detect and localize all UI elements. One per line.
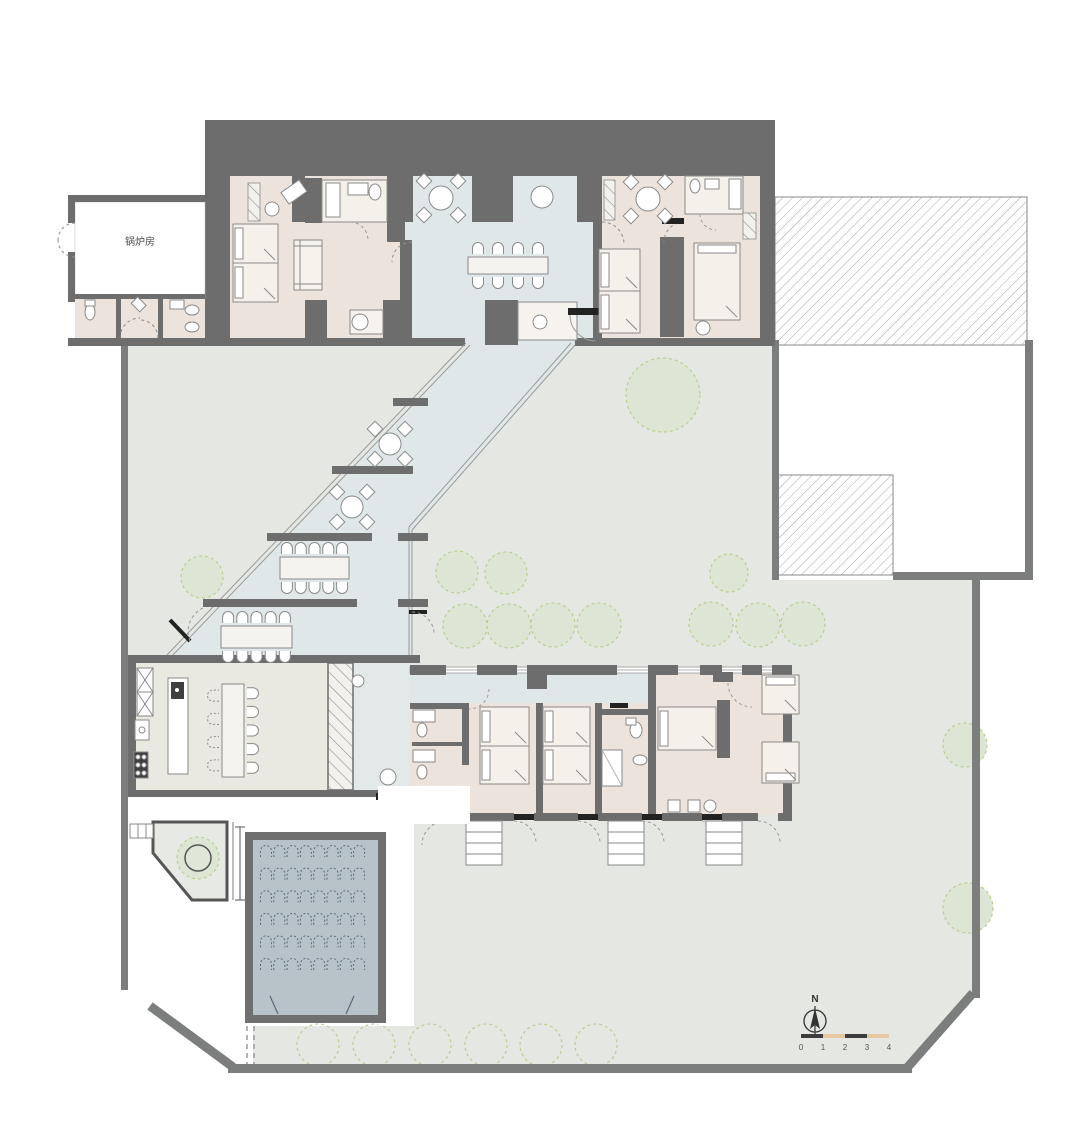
table-top: [696, 321, 710, 335]
sofa-room1: [294, 240, 322, 290]
boiler-annex: 锅炉房: [58, 195, 208, 346]
tree: [577, 603, 621, 647]
dimension-line: [235, 827, 245, 900]
pillow: [601, 253, 609, 287]
tree: [485, 552, 527, 594]
wing-east-stools: [668, 800, 716, 812]
chair: [265, 651, 276, 663]
tree: [443, 604, 487, 648]
pillow: [698, 245, 736, 253]
chair: [513, 277, 524, 289]
shelf-room2b: [604, 180, 615, 220]
kitchen-shelf-wall: [328, 663, 353, 790]
chair: [223, 612, 234, 624]
pillow: [545, 711, 553, 742]
round-table: [696, 321, 710, 335]
table-top: [352, 314, 368, 330]
tree: [181, 556, 223, 598]
tree: [531, 603, 575, 647]
annex-double-door: [58, 223, 75, 257]
bed: [543, 707, 590, 746]
scale-segment: [845, 1034, 867, 1038]
chair: [281, 582, 292, 594]
chair: [265, 612, 276, 624]
chair: [309, 543, 320, 555]
chair: [237, 612, 248, 624]
bed: [233, 224, 278, 263]
planter-tree-trunk: [185, 845, 211, 871]
tree: [943, 723, 987, 767]
chair: [533, 277, 544, 289]
main-building-north: [205, 120, 775, 346]
scale-segment: [867, 1034, 889, 1038]
chair: [493, 243, 504, 255]
threshold-bar: [568, 308, 602, 315]
bed: [762, 675, 799, 714]
bed: [233, 263, 278, 302]
table-top: [341, 496, 363, 518]
pillow: [766, 677, 795, 685]
pillow: [660, 711, 668, 746]
scale-segment: [823, 1034, 845, 1038]
chair: [473, 277, 484, 289]
table-top: [533, 315, 547, 329]
chair: [295, 582, 306, 594]
chair: [247, 762, 259, 773]
pillow: [235, 267, 243, 298]
chair: [247, 688, 259, 699]
pillow: [601, 295, 609, 329]
table-top: [265, 202, 279, 216]
table-top: [636, 187, 660, 211]
tree: [781, 602, 825, 646]
round-table: [265, 202, 279, 216]
chair: [247, 706, 259, 717]
table-top: [280, 557, 349, 579]
chair: [337, 582, 348, 594]
tree: [710, 554, 748, 592]
scale-label: 1: [821, 1043, 826, 1052]
chair: [493, 277, 504, 289]
chair: [309, 582, 320, 594]
chair: [513, 243, 524, 255]
chair: [279, 612, 290, 624]
lobby-desk: [518, 302, 577, 340]
chair: [251, 651, 262, 663]
auditorium: [245, 832, 386, 1023]
tree: [689, 602, 733, 646]
table-top: [352, 675, 364, 687]
chair: [337, 543, 348, 555]
round-table: [352, 314, 368, 330]
chair: [533, 243, 544, 255]
tree: [487, 604, 531, 648]
long-table: [221, 612, 292, 663]
chair: [247, 744, 259, 755]
bed: [599, 291, 640, 333]
kitchen-block: [128, 655, 420, 827]
floor-plan-canvas: 锅炉房: [0, 0, 1080, 1134]
table-top: [379, 433, 401, 455]
kitchen-island: [168, 678, 188, 774]
scale-label: 2: [843, 1043, 848, 1052]
chair: [237, 651, 248, 663]
bed: [480, 746, 529, 784]
bed: [658, 707, 716, 750]
neighbour-building-hatched: [775, 197, 1027, 575]
pillow: [235, 228, 243, 259]
bed: [762, 742, 799, 783]
scale-label: 0: [799, 1043, 804, 1052]
chair: [281, 543, 292, 555]
floor-plan-drawing: 锅炉房: [0, 0, 1080, 1134]
table-top: [222, 684, 244, 777]
chair: [223, 651, 234, 663]
chair: [295, 543, 306, 555]
chair: [247, 725, 259, 736]
bed: [543, 746, 590, 784]
table-top: [221, 626, 292, 648]
scale-label: 4: [887, 1043, 892, 1052]
chair: [323, 582, 334, 594]
round-table: [352, 675, 364, 687]
chair: [323, 543, 334, 555]
bed: [480, 707, 529, 746]
long-table: [280, 543, 349, 594]
pillow: [545, 750, 553, 780]
tree: [436, 551, 478, 593]
chair: [473, 243, 484, 255]
table-top: [380, 769, 396, 785]
table-top: [429, 186, 453, 210]
scale-label: 3: [865, 1043, 870, 1052]
bed: [599, 249, 640, 291]
shelf-room2: [743, 213, 756, 239]
chair: [251, 612, 262, 624]
pillow: [482, 750, 490, 780]
boiler-room-label: 锅炉房: [125, 235, 155, 248]
bed: [694, 243, 740, 320]
bed-frame: [694, 243, 740, 320]
tree: [736, 603, 780, 647]
tree: [626, 358, 700, 432]
round-table: [380, 769, 396, 785]
chair: [279, 651, 290, 663]
pillow: [482, 711, 490, 742]
round-table: [531, 186, 553, 208]
scale-segment: [801, 1034, 823, 1038]
round-table: [533, 315, 547, 329]
tree: [943, 883, 993, 933]
table-top: [531, 186, 553, 208]
planter-tree: [177, 837, 219, 879]
north-label: N: [811, 994, 818, 1005]
table-top: [468, 257, 548, 274]
